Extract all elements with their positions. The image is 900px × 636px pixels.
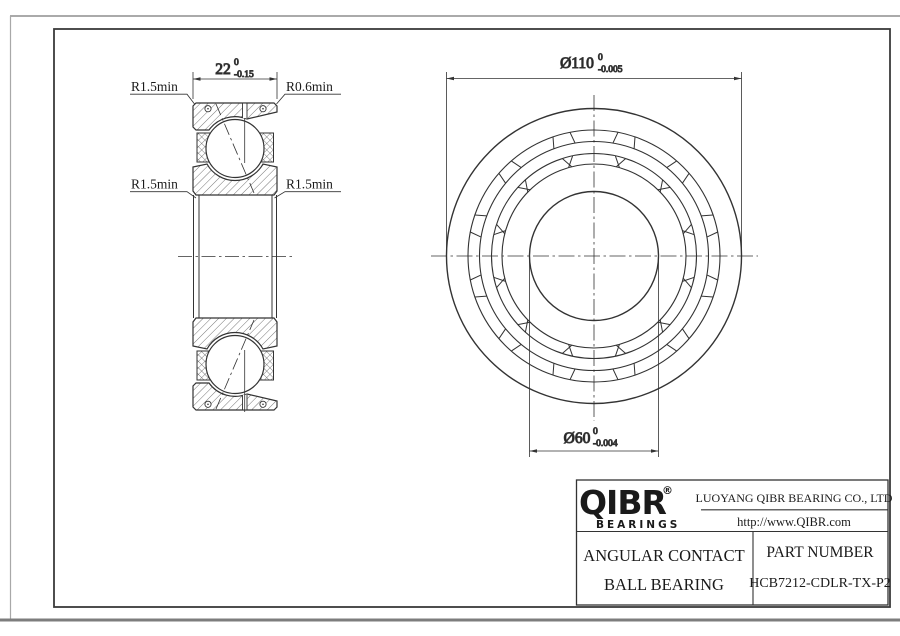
label-r-mid-left: R1.5min: [131, 177, 178, 192]
dim-width-tol-lower: -0.15: [234, 70, 254, 80]
bearing-drawing-canvas: 22 0 -0.15 R1.5min R0.6min R1.5min R1.5m…: [0, 0, 900, 636]
front-view: [431, 95, 758, 421]
dim-od-tol-upper: 0: [598, 53, 603, 63]
label-r-top-right: R0.6min: [286, 79, 333, 94]
section-view: [178, 103, 292, 412]
dim-width-tol-upper: 0: [234, 58, 239, 68]
registered-mark-icon: ®: [662, 484, 673, 497]
width-dimension: 22 0 -0.15: [193, 58, 277, 99]
dim-arrow: [651, 449, 659, 453]
company-name: LUOYANG QIBR BEARING CO., LTD: [696, 491, 893, 505]
dim-arrow: [734, 77, 742, 81]
dim-arrow: [270, 77, 278, 81]
logo-text: QIBR: [579, 483, 666, 522]
part-number-value: HCB7212-CDLR-TX-P2: [749, 576, 891, 591]
dim-arrow: [447, 77, 455, 81]
label-r-top-left: R1.5min: [131, 79, 178, 94]
dim-bore-value: Ø60: [564, 430, 591, 447]
product-name-line2: BALL BEARING: [604, 575, 724, 594]
dim-width-value: 22: [215, 61, 231, 78]
dim-od-tol-lower: -0.005: [598, 65, 623, 75]
part-number-label: PART NUMBER: [766, 544, 874, 561]
dim-arrow: [193, 77, 201, 81]
dim-od-value: Ø110: [560, 55, 594, 72]
dim-arrow: [530, 449, 538, 453]
label-r-mid-right: R1.5min: [286, 177, 333, 192]
dim-bore-tol-lower: -0.004: [593, 439, 618, 449]
slot-clear: [243, 104, 247, 119]
title-block: QIBR ® BEARINGS LUOYANG QIBR BEARING CO.…: [577, 480, 893, 605]
company-website: http://www.QIBR.com: [737, 515, 851, 529]
dim-bore-tol-upper: 0: [593, 427, 598, 437]
logo-subtext: BEARINGS: [596, 519, 680, 531]
product-name-line1: ANGULAR CONTACT: [583, 546, 744, 565]
